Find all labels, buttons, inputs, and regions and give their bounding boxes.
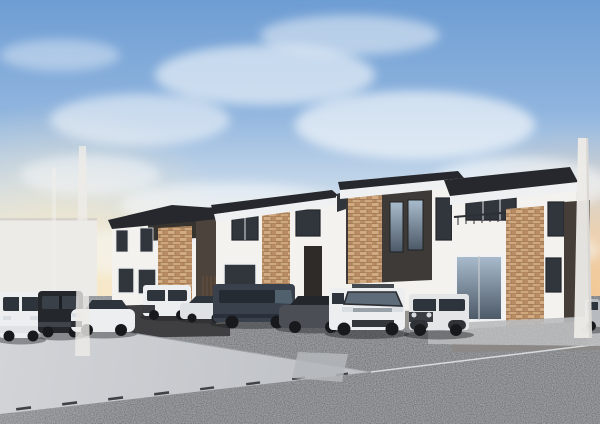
car-9-wheel-rear	[450, 324, 462, 336]
car-8-headlight-left	[342, 307, 353, 312]
car-9-pillar	[436, 299, 439, 311]
scene-rendering	[0, 0, 600, 424]
house-4-window-upper-right	[548, 202, 564, 236]
car-9-white-kei-suv	[404, 294, 474, 340]
car-8-wheel-right	[386, 323, 399, 336]
car-2-pillar	[59, 296, 62, 309]
car-8-headlight-right	[392, 307, 403, 312]
car-3-wheel-rear	[115, 324, 127, 336]
car-4-pillar	[165, 290, 168, 301]
house-1-window-lower-a	[118, 268, 134, 293]
car-4-wheel-front	[149, 310, 159, 320]
house-1-window-upper-left	[116, 230, 128, 252]
house-3-brick-pier	[348, 194, 382, 286]
car-6-wheel-front	[226, 316, 239, 329]
utility-pole-far	[52, 168, 56, 302]
house-3-wing-window	[436, 198, 452, 240]
car-6-windshield	[275, 290, 293, 304]
car-9-headlight-a	[412, 313, 417, 318]
car-9-headlight-b	[427, 313, 432, 318]
house-4-window-lower-right	[546, 258, 561, 292]
house-1-window-upper	[140, 228, 153, 252]
house-2-entrance	[304, 246, 322, 302]
car-8-wheel-left	[338, 323, 351, 336]
car-1-wheel-left	[4, 331, 15, 342]
car-7-wheel-front	[289, 321, 301, 333]
car-6-windows	[219, 290, 275, 303]
car-8-side-window	[332, 293, 344, 304]
car-8-windshield	[344, 292, 402, 306]
house-2-window-upper-right	[296, 210, 320, 236]
concrete-pad	[292, 352, 348, 382]
car-5-wheel-front	[188, 314, 197, 323]
house-3-tall-window-a	[390, 202, 403, 252]
car-1-headlight-left	[3, 316, 11, 320]
car-1-headlight-right	[30, 316, 38, 320]
house-4-brick-pier	[506, 206, 544, 336]
car-2-wheel-left	[43, 327, 54, 338]
car-8-white-minivan	[325, 288, 409, 339]
car-1-pillar	[19, 297, 22, 311]
car-9-wheel-front	[414, 324, 426, 336]
house-3-tall-window-b	[408, 200, 423, 250]
